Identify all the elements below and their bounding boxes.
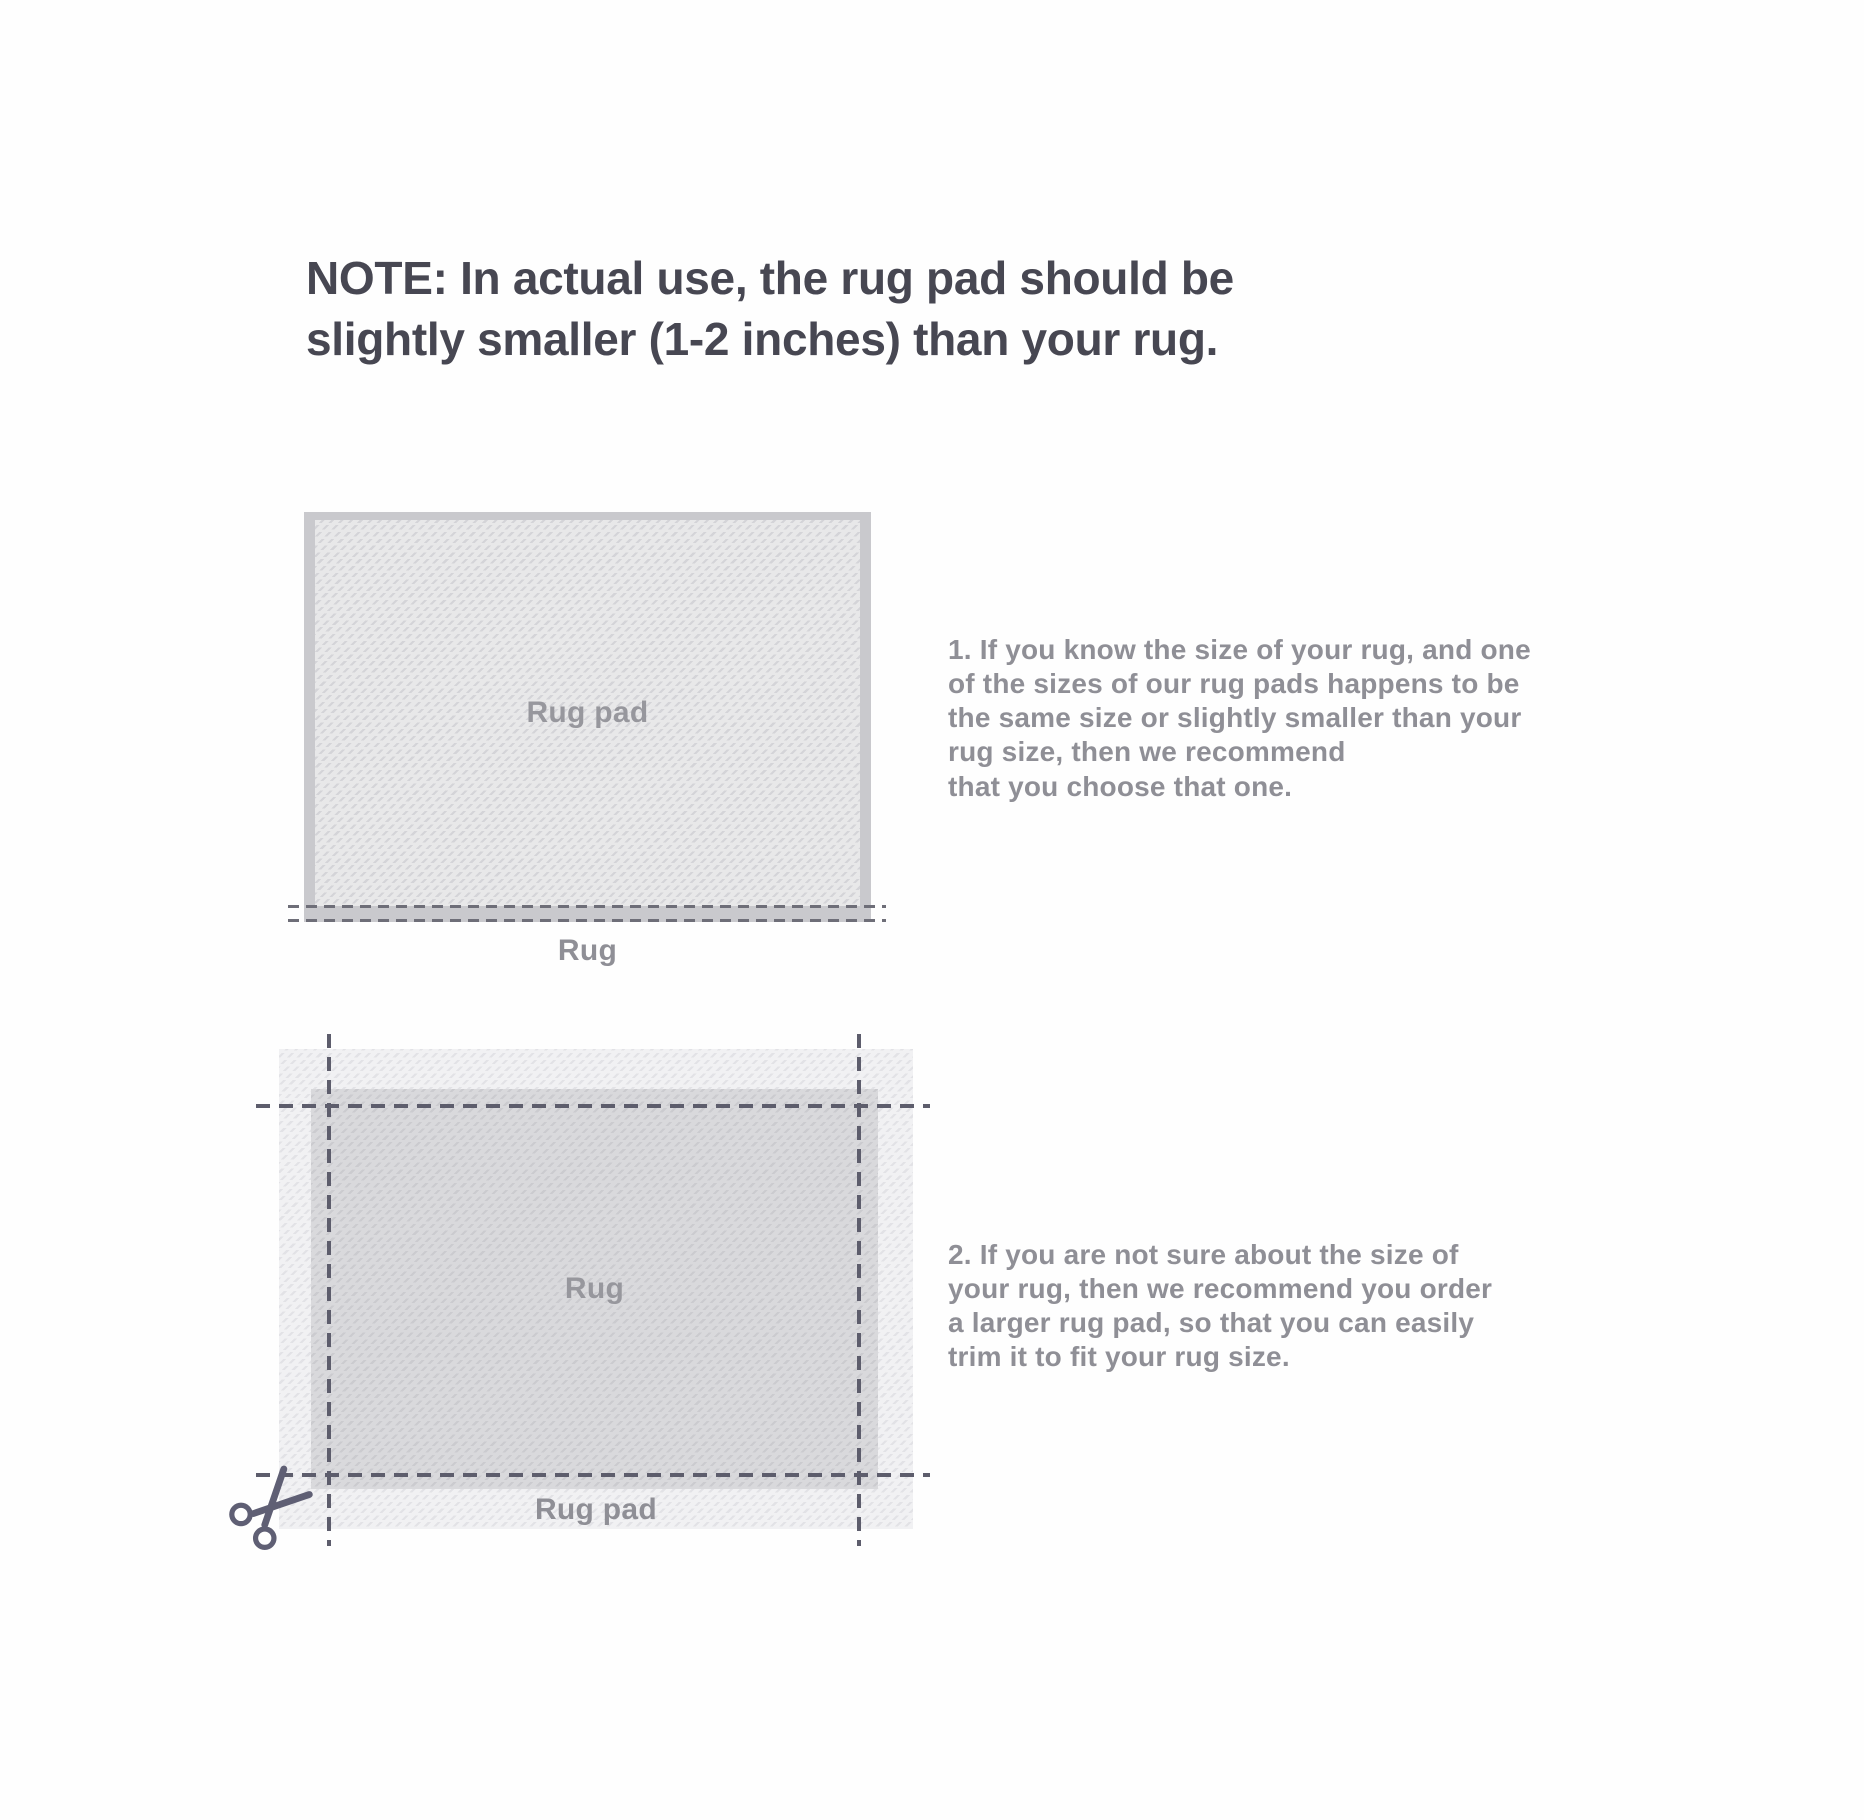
diagram1-rugpad-label: Rug pad <box>315 696 860 730</box>
diagram2-rugpad-label: Rug pad <box>279 1493 913 1527</box>
note-title: NOTE: In actual use, the rug pad should … <box>306 248 1506 370</box>
step2-text: 2. If you are not sure about the size of… <box>948 1238 1648 1375</box>
diagram1-rug-label: Rug <box>304 934 871 968</box>
diagram1-rug-top-dashed-line <box>288 905 886 908</box>
diagram2-rug-label: Rug <box>311 1272 878 1306</box>
diagram1-rug-bottom-dashed-line <box>288 919 886 922</box>
step1-text: 1. If you know the size of your rug, and… <box>948 633 1648 804</box>
diagram2-bottom-cut-line <box>256 1473 930 1477</box>
diagram2-top-cut-line <box>256 1104 930 1108</box>
infographic-canvas: NOTE: In actual use, the rug pad should … <box>0 0 1864 1820</box>
